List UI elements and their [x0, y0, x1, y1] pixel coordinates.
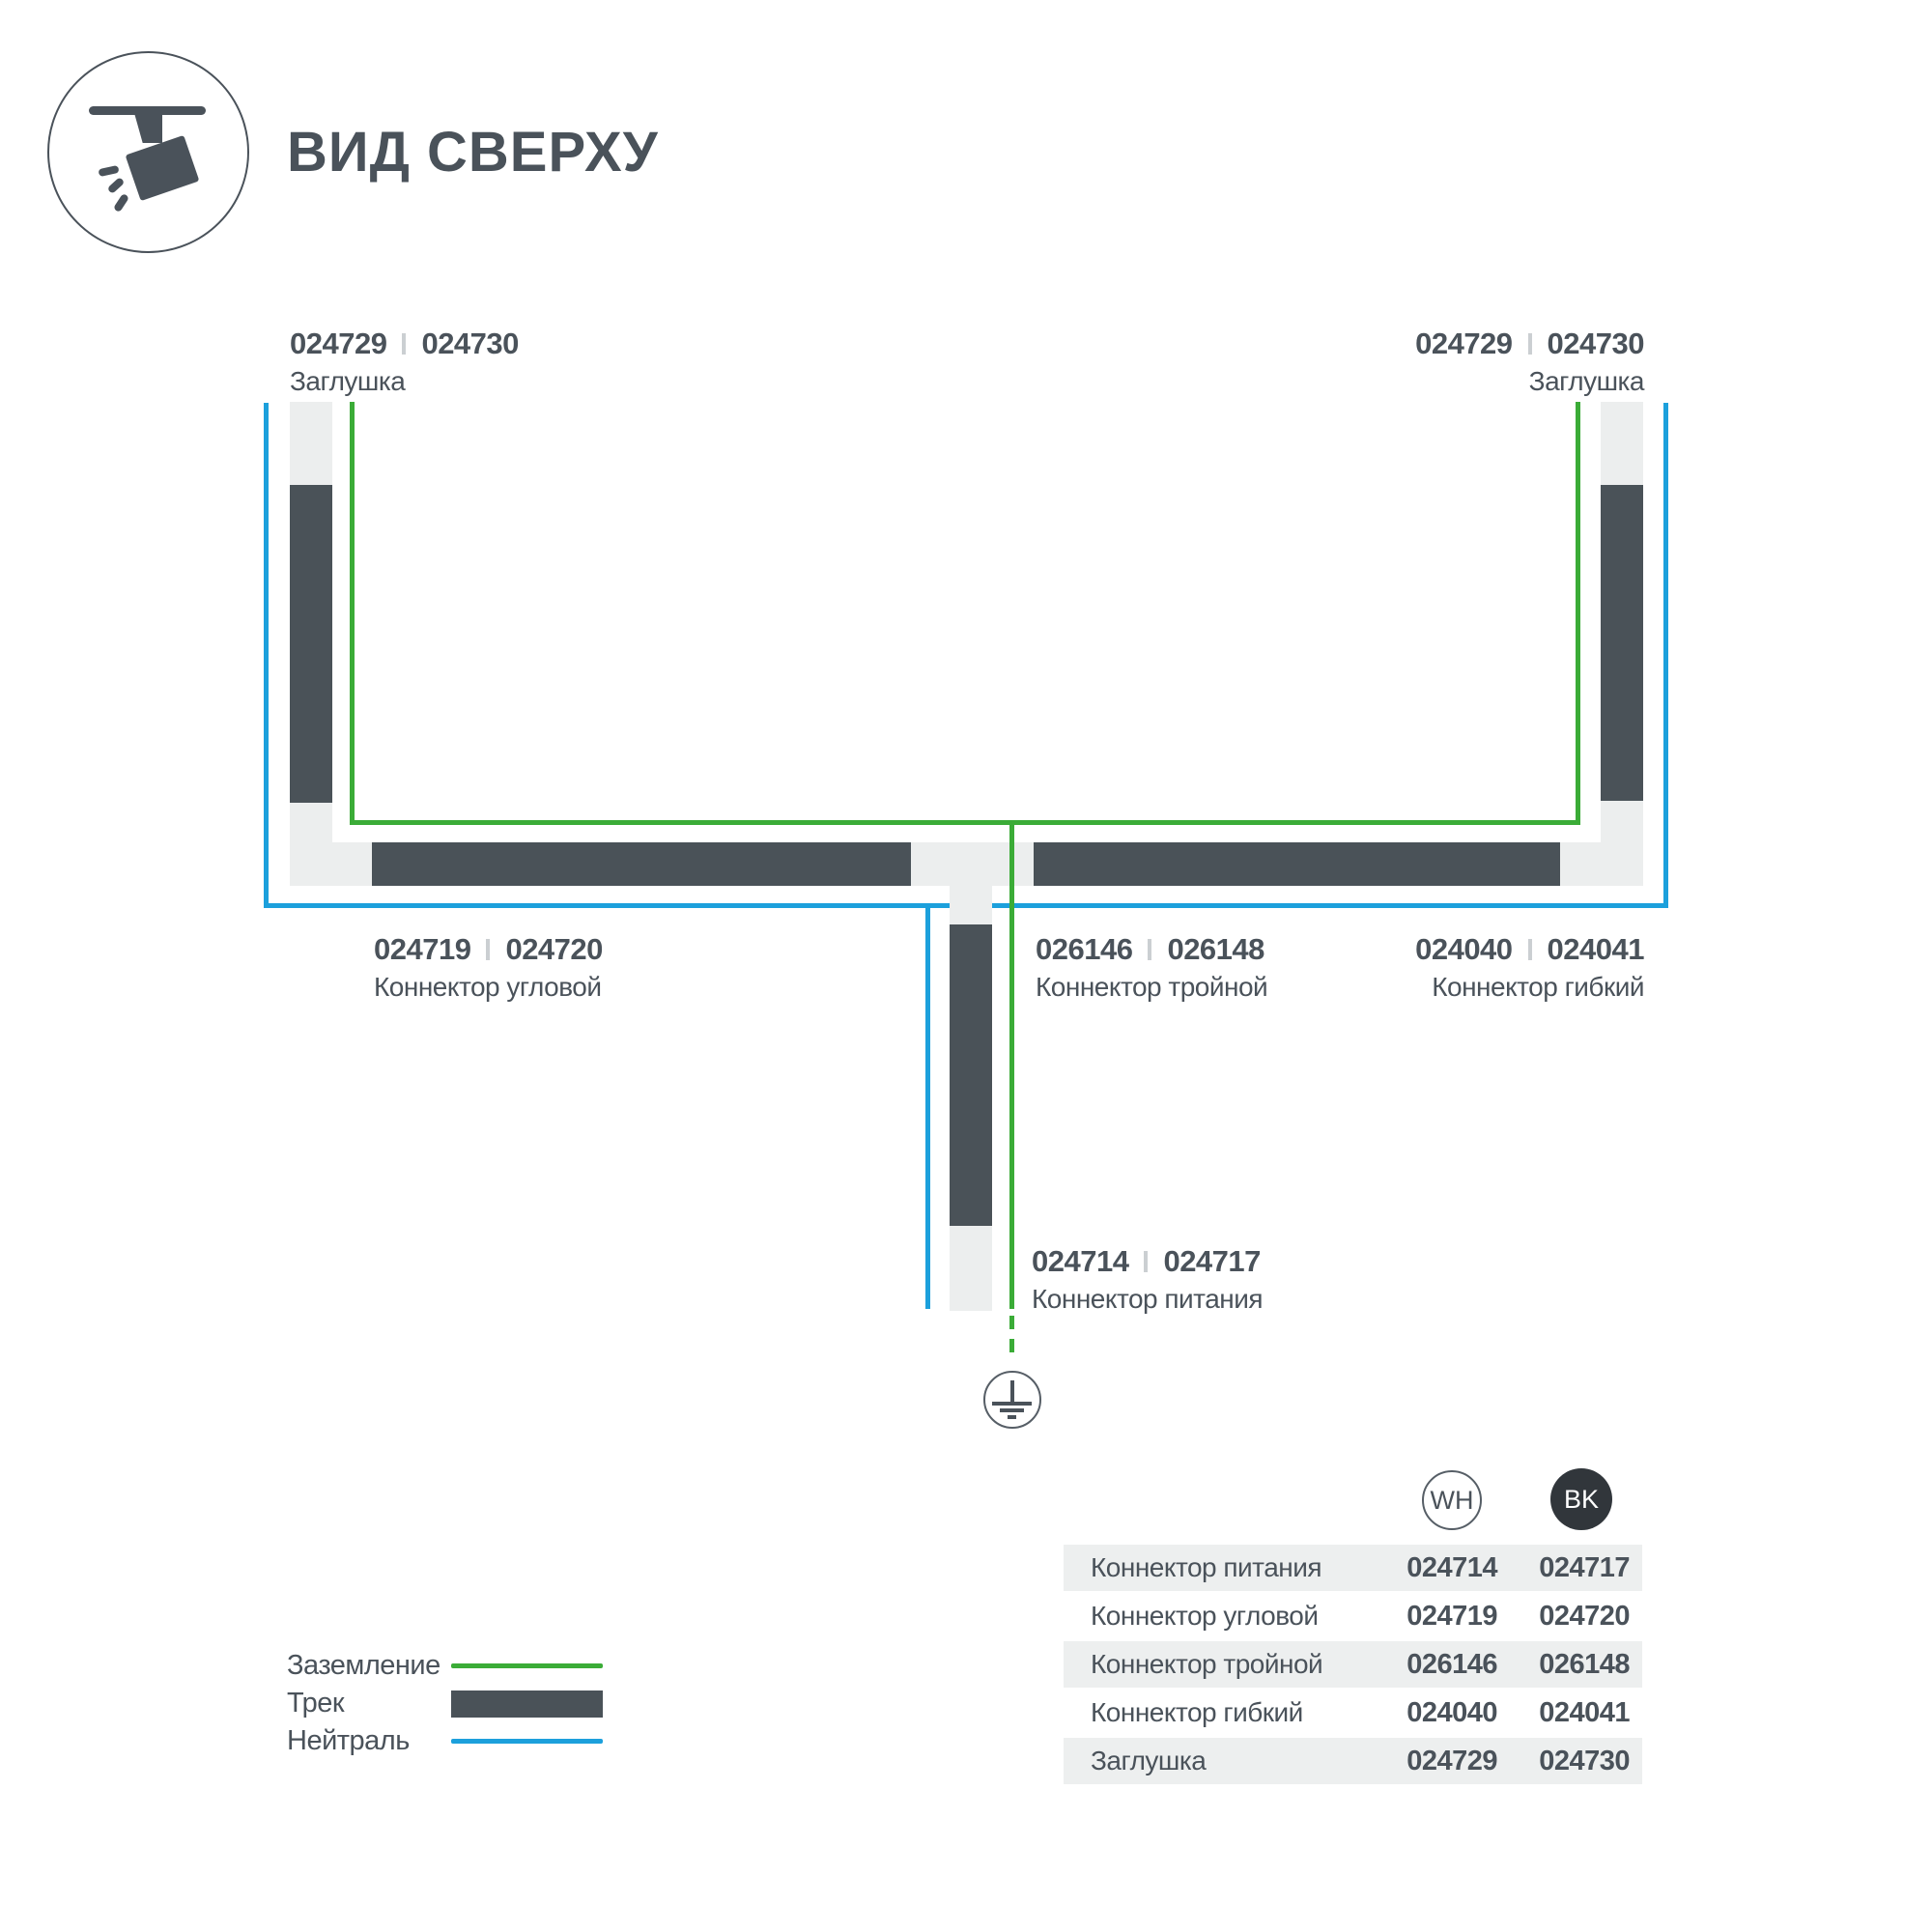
code-wh: 024719	[374, 932, 470, 966]
earth-ground-icon	[1000, 1408, 1024, 1412]
legend-row-track: Трек	[287, 1685, 603, 1722]
code-separator	[402, 333, 406, 355]
legend-label: Заземление	[287, 1650, 440, 1682]
code-bk: 024730	[1497, 1746, 1642, 1777]
part-name: Заглушка	[1064, 1746, 1383, 1776]
code-bk: 024720	[1497, 1601, 1642, 1633]
label-corner-connector: 024719024720 Коннектор угловой	[374, 934, 603, 1001]
code-wh: 026146	[1383, 1649, 1497, 1681]
neutral-wire-path	[264, 403, 1668, 908]
part-name: Коннектор тройной	[1036, 974, 1267, 1001]
code-separator	[1148, 939, 1151, 960]
power-connector	[950, 1226, 992, 1311]
part-name: Коннектор угловой	[374, 974, 603, 1001]
legend-row-neutral: Нейтраль	[287, 1722, 603, 1760]
code-separator	[1528, 939, 1532, 960]
code-wh: 024729	[1415, 327, 1512, 360]
code-bk: 024717	[1163, 1244, 1260, 1278]
part-name: Коннектор питания	[1032, 1286, 1263, 1313]
ground-wire-branch	[1009, 822, 1014, 1309]
light-ray-icon	[98, 165, 119, 177]
part-name: Коннектор питания	[1064, 1552, 1383, 1583]
color-black-badge: BK	[1550, 1468, 1612, 1530]
legend-label: Нейтраль	[287, 1725, 410, 1757]
legend: Заземление Трек Нейтраль	[287, 1647, 603, 1760]
code-bk: 026148	[1167, 932, 1264, 966]
code-wh: 024040	[1415, 932, 1512, 966]
ground-line-swatch	[451, 1663, 603, 1668]
track-stem-shape	[134, 113, 162, 143]
triple-connector	[911, 842, 1034, 886]
label-flexible-connector: 024040024041 Коннектор гибкий	[1415, 934, 1644, 1001]
earth-ground-icon	[992, 1402, 1032, 1406]
table-row: Заглушка 024729 024730	[1064, 1738, 1642, 1784]
label-end-cap-left: 024729024730 Заглушка	[290, 328, 519, 395]
code-wh: 026146	[1036, 932, 1132, 966]
legend-label: Трек	[287, 1688, 344, 1719]
code-wh: 024729	[1383, 1746, 1497, 1777]
earth-ground-icon	[1008, 1415, 1016, 1419]
track-segment-left	[290, 485, 332, 803]
track-swatch	[451, 1690, 603, 1718]
table-row: Коннектор питания 024714 024717	[1064, 1545, 1642, 1591]
code-bk: 024720	[505, 932, 602, 966]
track-segment-horizontal-left	[372, 842, 911, 886]
spotlight-head-shape	[126, 135, 200, 201]
earth-ground-icon	[983, 1371, 1041, 1429]
part-name: Коннектор тройной	[1064, 1649, 1383, 1680]
code-separator	[486, 939, 490, 960]
part-name: Коннектор угловой	[1064, 1601, 1383, 1632]
neutral-line-swatch	[451, 1739, 603, 1744]
parts-table: WH BK Коннектор питания 024714 024717 Ко…	[1064, 1468, 1642, 1786]
table-row: Коннектор угловой 024719 024720	[1064, 1593, 1642, 1639]
code-wh: 024719	[1383, 1601, 1497, 1633]
code-separator	[1144, 1251, 1148, 1272]
part-name: Коннектор гибкий	[1415, 974, 1644, 1001]
code-bk: 026148	[1497, 1649, 1642, 1681]
corner-connector-left	[290, 842, 372, 886]
label-triple-connector: 026146026148 Коннектор тройной	[1036, 934, 1267, 1001]
end-cap-right	[1601, 402, 1643, 485]
table-row: Коннектор тройной 026146 026148	[1064, 1641, 1642, 1688]
legend-row-ground: Заземление	[287, 1647, 603, 1685]
code-wh: 024714	[1383, 1552, 1497, 1584]
earth-ground-icon	[1010, 1380, 1014, 1404]
label-end-cap-right: 024729024730 Заглушка	[1415, 328, 1644, 395]
light-ray-icon	[113, 193, 129, 213]
code-bk: 024717	[1497, 1552, 1642, 1584]
code-bk: 024730	[1548, 327, 1644, 360]
end-cap-left	[290, 402, 332, 485]
color-white-badge: WH	[1422, 1470, 1482, 1530]
code-wh: 024714	[1032, 1244, 1128, 1278]
part-name: Заглушка	[290, 368, 519, 395]
track-swatch	[451, 1690, 603, 1718]
track-light-icon	[47, 51, 249, 253]
code-bk: 024041	[1548, 932, 1644, 966]
code-bk: 024041	[1497, 1697, 1642, 1729]
ground-wire-dashed	[1009, 1316, 1014, 1362]
track-segment-right	[1601, 485, 1643, 801]
neutral-line-swatch	[451, 1739, 603, 1744]
code-wh: 024729	[290, 327, 386, 360]
parts-table-header: WH BK	[1064, 1468, 1642, 1545]
track-segment-horizontal-right	[1034, 842, 1560, 886]
neutral-wire-branch	[925, 906, 930, 1309]
part-name: Коннектор гибкий	[1064, 1697, 1383, 1728]
light-ray-icon	[107, 177, 126, 194]
track-segment-bottom	[950, 924, 992, 1226]
flexible-connector-right	[1560, 842, 1643, 886]
code-separator	[1528, 333, 1532, 355]
code-bk: 024730	[421, 327, 518, 360]
part-name: Заглушка	[1415, 368, 1644, 395]
table-row: Коннектор гибкий 024040 024041	[1064, 1690, 1642, 1736]
code-wh: 024040	[1383, 1697, 1497, 1729]
ground-line-swatch	[451, 1663, 603, 1668]
page-title: ВИД СВЕРХУ	[287, 120, 659, 185]
triple-connector	[950, 886, 992, 925]
label-power-connector: 024714024717 Коннектор питания	[1032, 1246, 1263, 1313]
page: ВИД СВЕРХУ 024729024730 Заглушка 0247290…	[0, 0, 1932, 1932]
